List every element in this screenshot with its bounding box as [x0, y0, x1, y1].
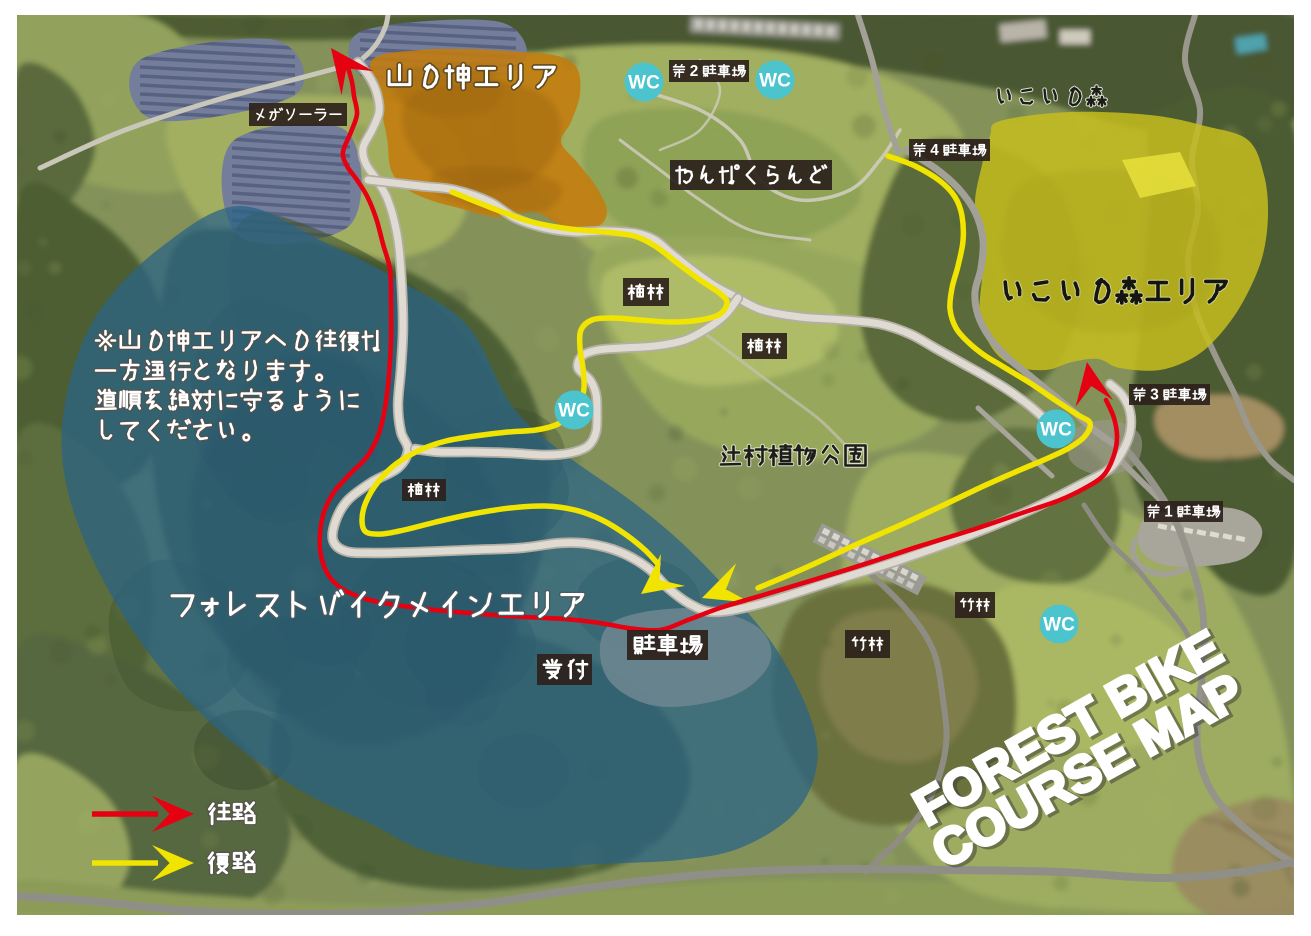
- svg-text:WC: WC: [1043, 615, 1075, 636]
- svg-text:4: 4: [930, 142, 939, 159]
- svg-text:WC: WC: [1040, 420, 1072, 441]
- svg-text:WC: WC: [558, 401, 590, 422]
- svg-text:3: 3: [1150, 386, 1159, 403]
- svg-text:WC: WC: [628, 73, 660, 94]
- svg-text:2: 2: [690, 63, 699, 80]
- svg-text:1: 1: [1164, 503, 1173, 520]
- svg-text:WC: WC: [759, 71, 791, 92]
